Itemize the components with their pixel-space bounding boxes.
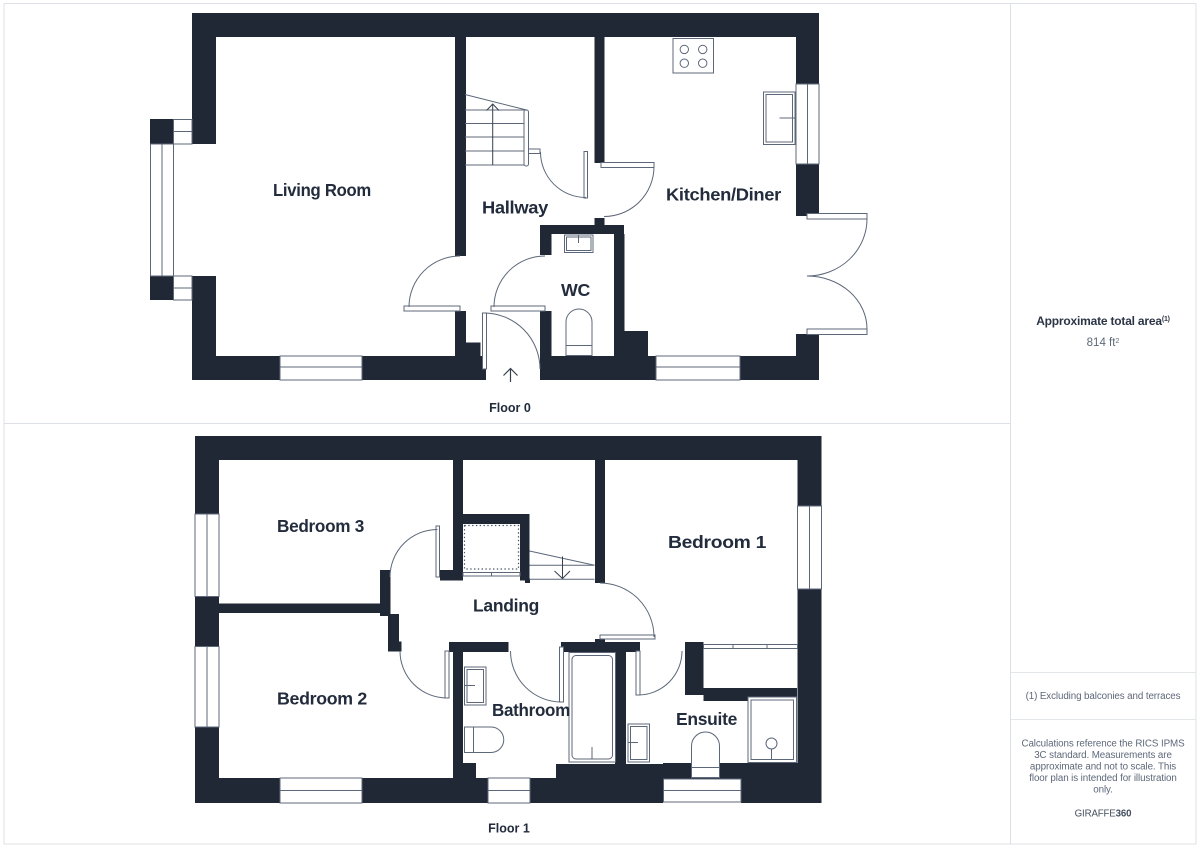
- svg-text:Approximate total area(1): Approximate total area(1): [1036, 314, 1170, 328]
- svg-text:Calculations reference the RIC: Calculations reference the RICS IPMS: [1021, 739, 1185, 750]
- svg-text:3C standard. Measurements are: 3C standard. Measurements are: [1034, 750, 1172, 761]
- svg-text:Hallway: Hallway: [482, 198, 549, 218]
- svg-text:floor plan is intended for ill: floor plan is intended for illustration: [1029, 773, 1177, 784]
- svg-text:Floor 1: Floor 1: [488, 822, 530, 836]
- svg-text:(1) Excluding balconies and te: (1) Excluding balconies and terraces: [1026, 691, 1181, 702]
- svg-text:Floor 0: Floor 0: [489, 401, 531, 415]
- svg-text:Bedroom 3: Bedroom 3: [277, 516, 365, 536]
- svg-text:814 ft2: 814 ft2: [1087, 337, 1120, 349]
- svg-text:Living Room: Living Room: [273, 180, 371, 200]
- svg-text:Bathroom: Bathroom: [492, 700, 570, 720]
- svg-text:WC: WC: [561, 280, 591, 300]
- svg-text:Kitchen/Diner: Kitchen/Diner: [666, 185, 782, 205]
- svg-text:Ensuite: Ensuite: [676, 709, 738, 729]
- svg-text:Bedroom 1: Bedroom 1: [668, 532, 767, 552]
- svg-text:only.: only.: [1093, 785, 1112, 796]
- svg-text:Bedroom 2: Bedroom 2: [277, 689, 368, 709]
- svg-text:GIRAFFE360: GIRAFFE360: [1075, 809, 1132, 820]
- svg-text:approximate and not to scale.: approximate and not to scale. This: [1030, 762, 1176, 773]
- svg-text:Landing: Landing: [473, 596, 539, 616]
